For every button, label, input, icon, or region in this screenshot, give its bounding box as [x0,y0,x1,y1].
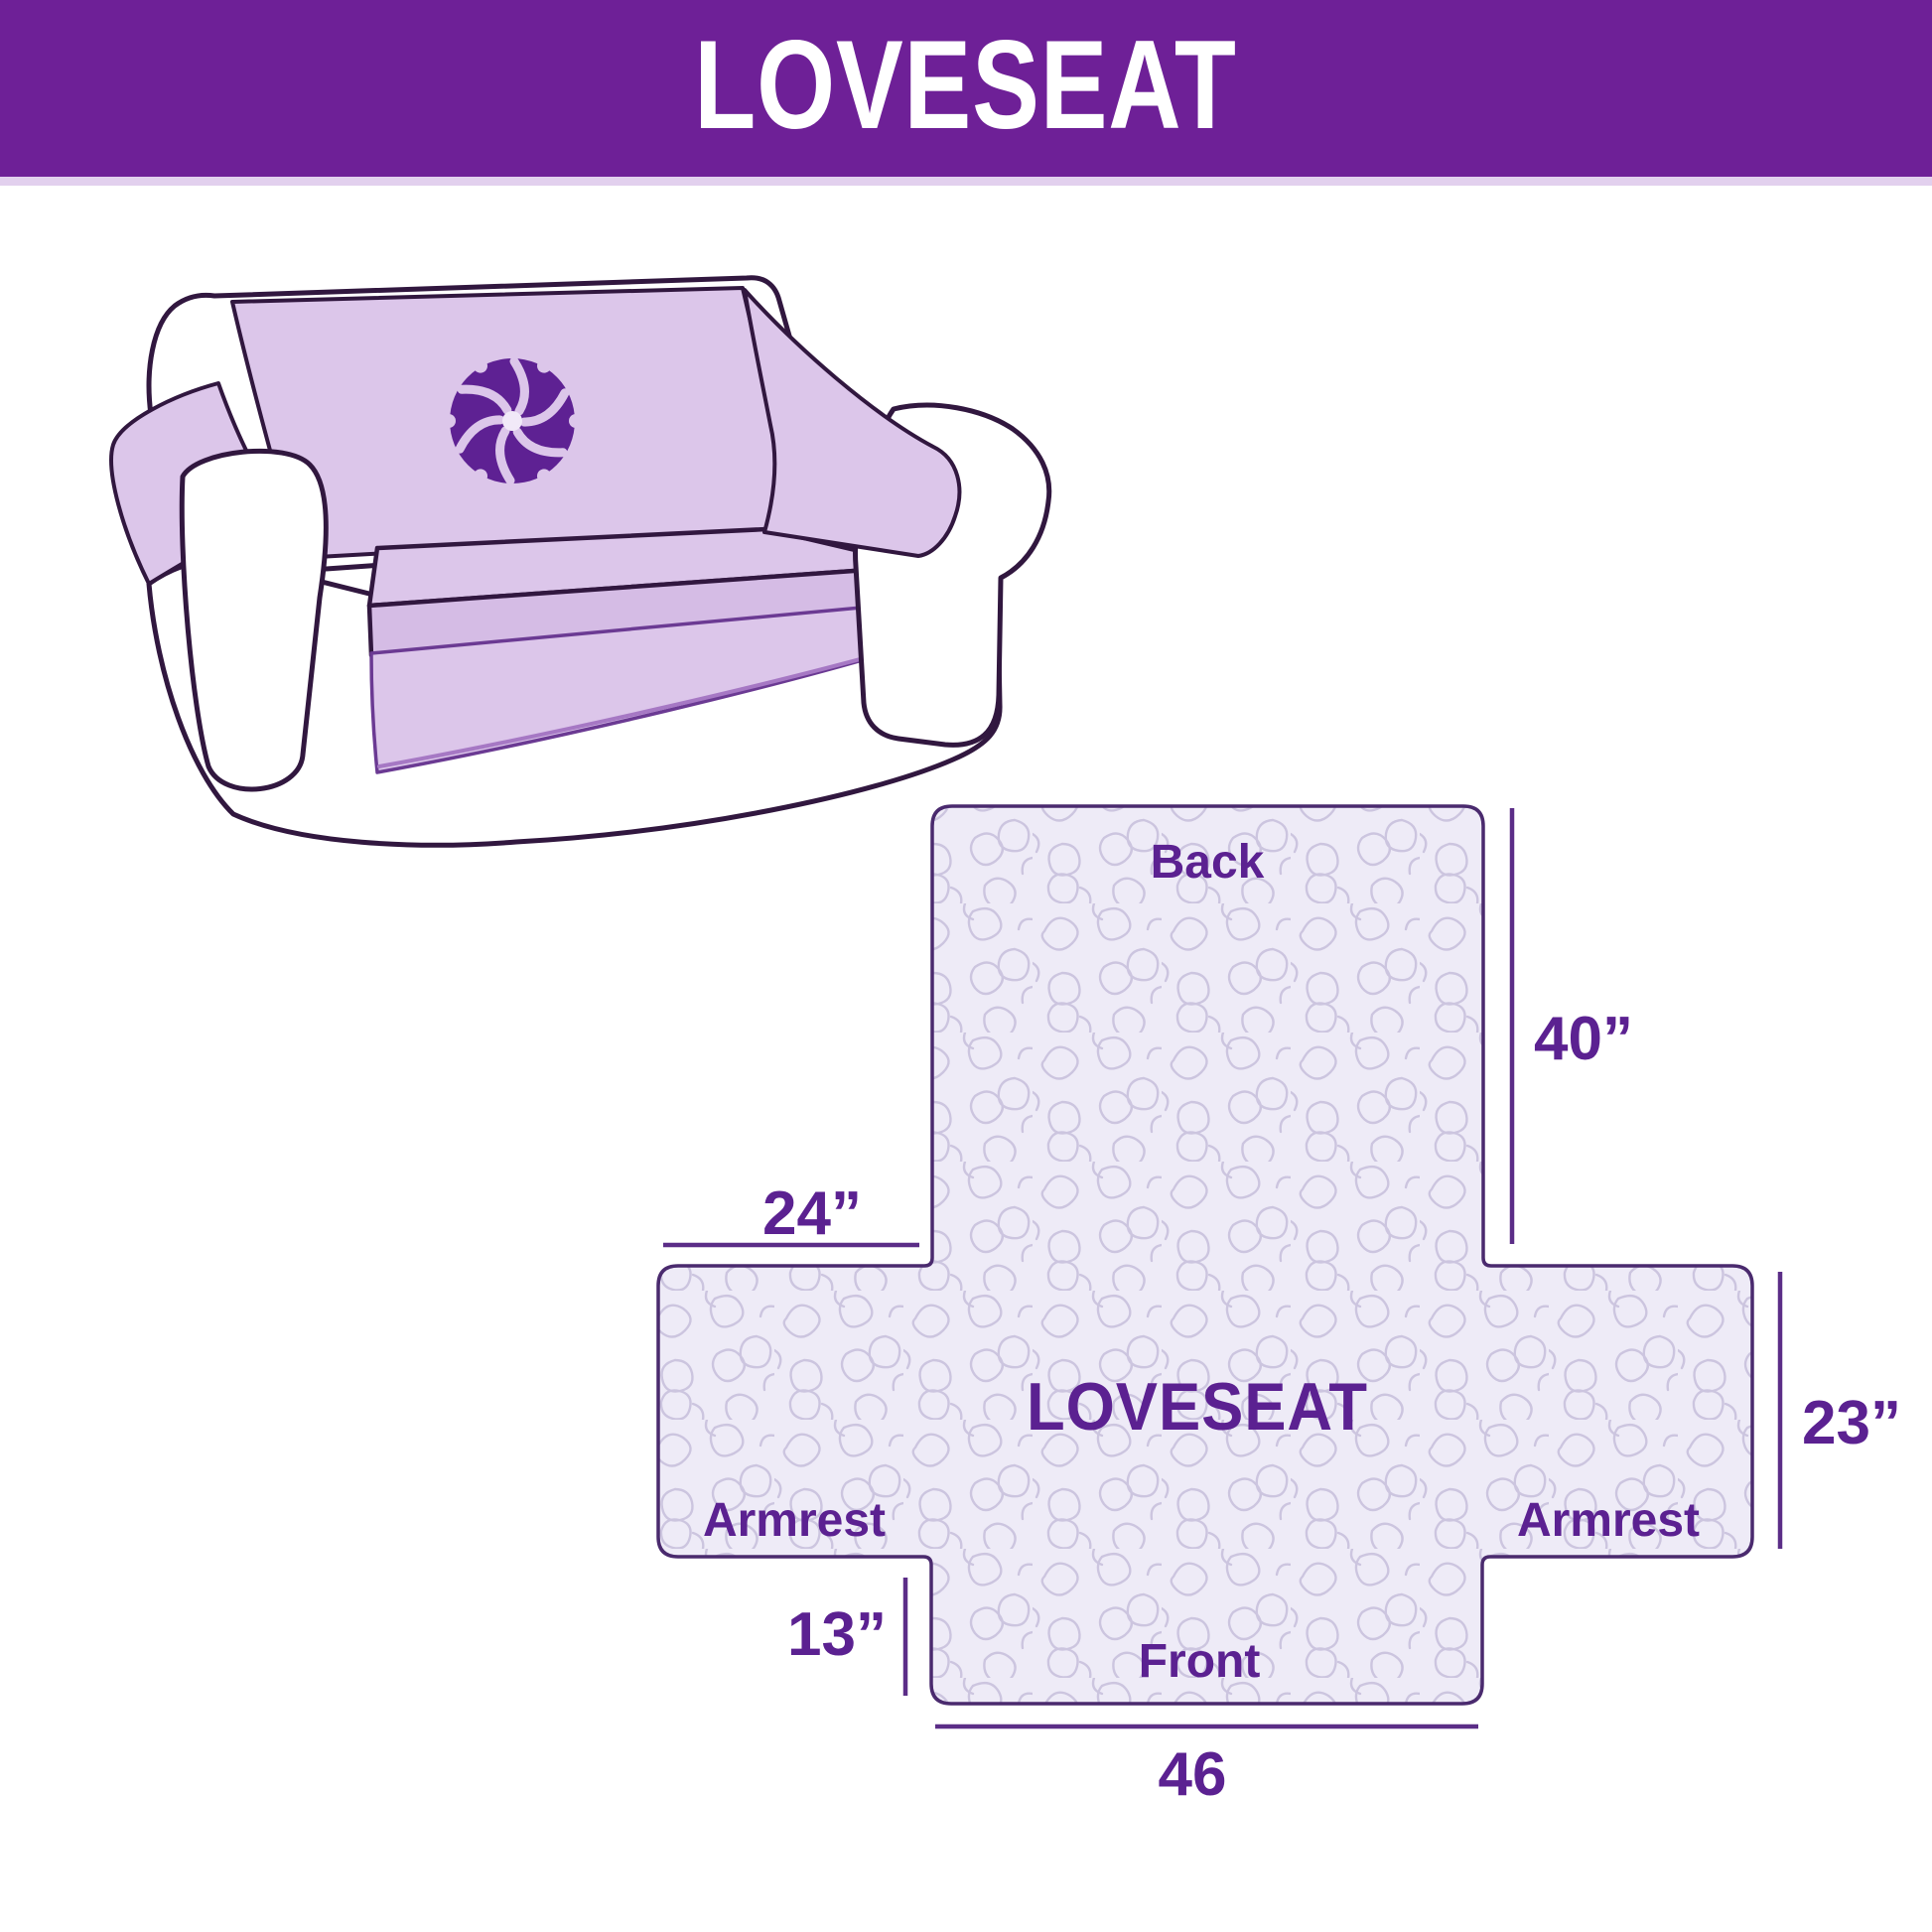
infographic-page: LOVESEAT [0,0,1932,1932]
sofa-illustration [111,278,1049,846]
dim-label-24: 24” [762,1179,862,1248]
dim-label-23: 23” [1802,1389,1901,1457]
loveseat-graphics: Back LOVESEAT Armrest Armrest Front 40” … [0,0,1932,1932]
dim-label-46: 46 [1159,1740,1227,1809]
cover-outline-shape [658,806,1752,1704]
dim-label-13: 13” [787,1600,887,1669]
label-loveseat: LOVESEAT [1027,1369,1368,1445]
label-armrest-left: Armrest [703,1494,886,1547]
label-back: Back [1151,836,1265,889]
cover-dimension-diagram: Back LOVESEAT Armrest Armrest Front 40” … [658,806,1901,1809]
sofa-left-arm [182,451,326,789]
label-front: Front [1139,1635,1261,1688]
label-armrest-right: Armrest [1517,1494,1700,1547]
dim-label-40: 40” [1534,1005,1633,1073]
